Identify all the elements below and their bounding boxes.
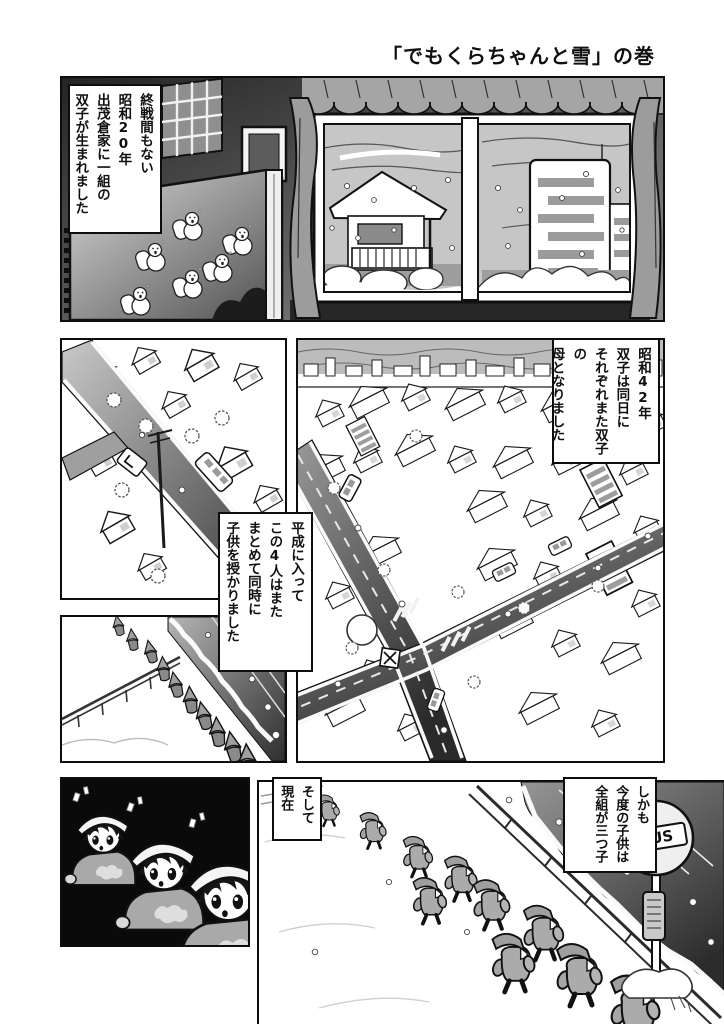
window-right-pane [478,124,634,292]
caption-triplets: しかも 今度の子供は 全組が三つ子 [563,777,657,873]
crossing-sign [380,648,400,668]
curtain-valance [302,78,663,114]
kids-closeup-scene [62,779,248,945]
window-left-pane [323,124,474,296]
manga-page: 「でもくらちゃんと雪」の巻 [0,0,724,1024]
caption-heisei: 平成に入って この4人はまた まとめて同時に 子供を授かりました [218,512,313,672]
page-title: 「でもくらちゃんと雪」の巻 [382,40,655,69]
edge-dots [64,228,69,313]
caption-birth: 終戦間もない 昭和20年 出茂倉家に一組の 双子が生まれました [68,84,162,234]
caption-showa42: 昭和42年 双子は同日に それぞれまた双子の 母となりました [552,338,660,464]
timetable-plate [643,892,665,940]
snow-mound [347,615,377,645]
panel-kids-closeup [60,777,250,947]
snow-mound [622,969,692,998]
caption-now: そして 現在 [272,777,322,841]
lattice-window [162,79,222,158]
